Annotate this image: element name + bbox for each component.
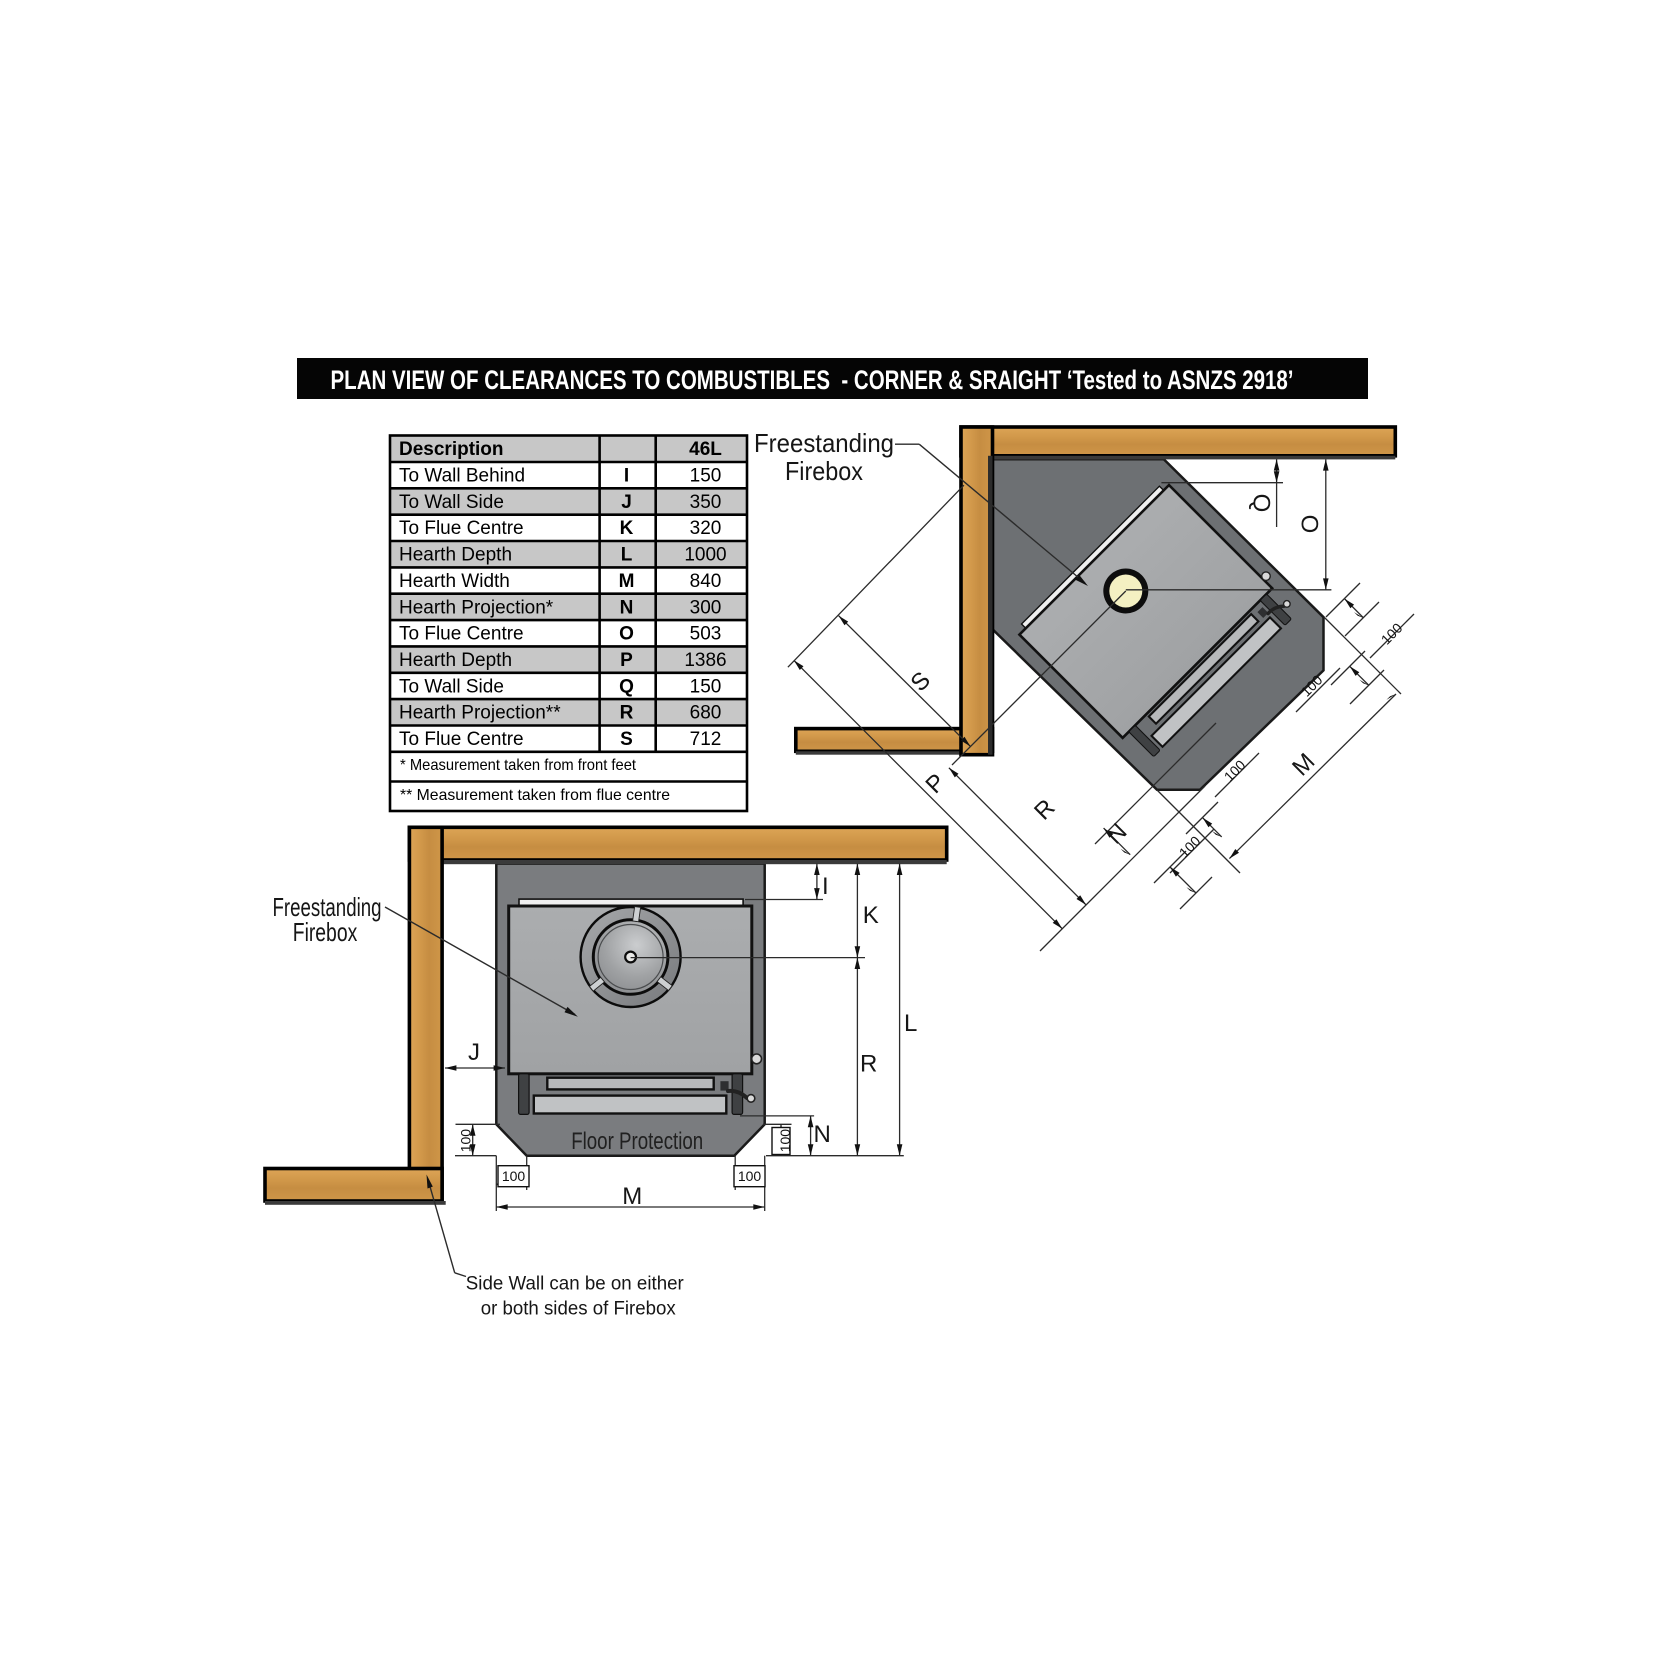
svg-text:S: S bbox=[620, 729, 633, 750]
svg-text:100: 100 bbox=[458, 1129, 474, 1153]
svg-text:Firebox: Firebox bbox=[785, 456, 863, 486]
svg-text:712: 712 bbox=[690, 729, 722, 750]
svg-text:46L: 46L bbox=[689, 439, 722, 460]
svg-text:M: M bbox=[622, 1183, 642, 1210]
svg-text:To Wall Behind: To Wall Behind bbox=[399, 466, 525, 487]
svg-text:N: N bbox=[620, 597, 634, 618]
svg-text:To Wall Side: To Wall Side bbox=[399, 676, 504, 697]
svg-text:150: 150 bbox=[690, 676, 722, 697]
svg-text:Firebox: Firebox bbox=[293, 917, 358, 947]
svg-text:To Flue Centre: To Flue Centre bbox=[399, 729, 524, 750]
svg-text:O: O bbox=[1295, 515, 1322, 534]
svg-text:K: K bbox=[863, 902, 879, 929]
svg-text:I: I bbox=[624, 466, 629, 487]
svg-text:680: 680 bbox=[690, 703, 722, 724]
svg-text:150: 150 bbox=[690, 466, 722, 487]
svg-text:To Flue Centre: To Flue Centre bbox=[399, 518, 524, 539]
svg-text:R: R bbox=[620, 703, 634, 724]
svg-text:** Measurement taken from flue: ** Measurement taken from flue centre bbox=[400, 787, 670, 804]
svg-text:100: 100 bbox=[777, 1129, 793, 1153]
svg-text:300: 300 bbox=[690, 597, 722, 618]
svg-text:Freestanding: Freestanding bbox=[754, 428, 894, 458]
svg-text:P: P bbox=[620, 650, 633, 671]
svg-text:Q: Q bbox=[1247, 494, 1274, 513]
svg-text:100: 100 bbox=[738, 1168, 762, 1184]
svg-text:Hearth Depth: Hearth Depth bbox=[399, 650, 512, 671]
svg-text:Hearth Projection**: Hearth Projection** bbox=[399, 703, 561, 724]
svg-text:O: O bbox=[619, 624, 634, 645]
svg-text:* Measurement taken from front: * Measurement taken from front feet bbox=[400, 757, 637, 774]
svg-text:PLAN VIEW OF CLEARANCES TO COM: PLAN VIEW OF CLEARANCES TO COMBUSTIBLES … bbox=[331, 365, 1294, 395]
svg-text:or both sides of Firebox: or both sides of Firebox bbox=[481, 1298, 676, 1320]
svg-text:Side Wall can be on either: Side Wall can be on either bbox=[466, 1273, 684, 1295]
svg-text:I: I bbox=[822, 873, 829, 900]
svg-text:Hearth Width: Hearth Width bbox=[399, 571, 510, 592]
svg-text:840: 840 bbox=[690, 571, 722, 592]
svg-text:1000: 1000 bbox=[684, 545, 726, 566]
svg-text:R: R bbox=[860, 1051, 877, 1078]
svg-text:To Flue Centre: To Flue Centre bbox=[399, 624, 524, 645]
svg-text:L: L bbox=[621, 545, 633, 566]
svg-text:Floor Protection: Floor Protection bbox=[571, 1128, 703, 1155]
svg-text:Hearth Projection*: Hearth Projection* bbox=[399, 597, 554, 618]
svg-text:350: 350 bbox=[690, 492, 722, 513]
svg-text:1386: 1386 bbox=[684, 650, 726, 671]
svg-text:K: K bbox=[620, 518, 634, 539]
svg-text:100: 100 bbox=[502, 1168, 526, 1184]
svg-text:L: L bbox=[904, 1010, 917, 1037]
svg-text:J: J bbox=[621, 492, 632, 513]
svg-text:To Wall Side: To Wall Side bbox=[399, 492, 504, 513]
svg-text:320: 320 bbox=[690, 518, 722, 539]
svg-text:M: M bbox=[619, 571, 635, 592]
svg-text:Description: Description bbox=[399, 439, 504, 460]
svg-text:Hearth Depth: Hearth Depth bbox=[399, 545, 512, 566]
svg-text:N: N bbox=[814, 1121, 831, 1148]
svg-text:503: 503 bbox=[690, 624, 722, 645]
svg-text:J: J bbox=[468, 1039, 480, 1066]
svg-text:Q: Q bbox=[619, 676, 634, 697]
